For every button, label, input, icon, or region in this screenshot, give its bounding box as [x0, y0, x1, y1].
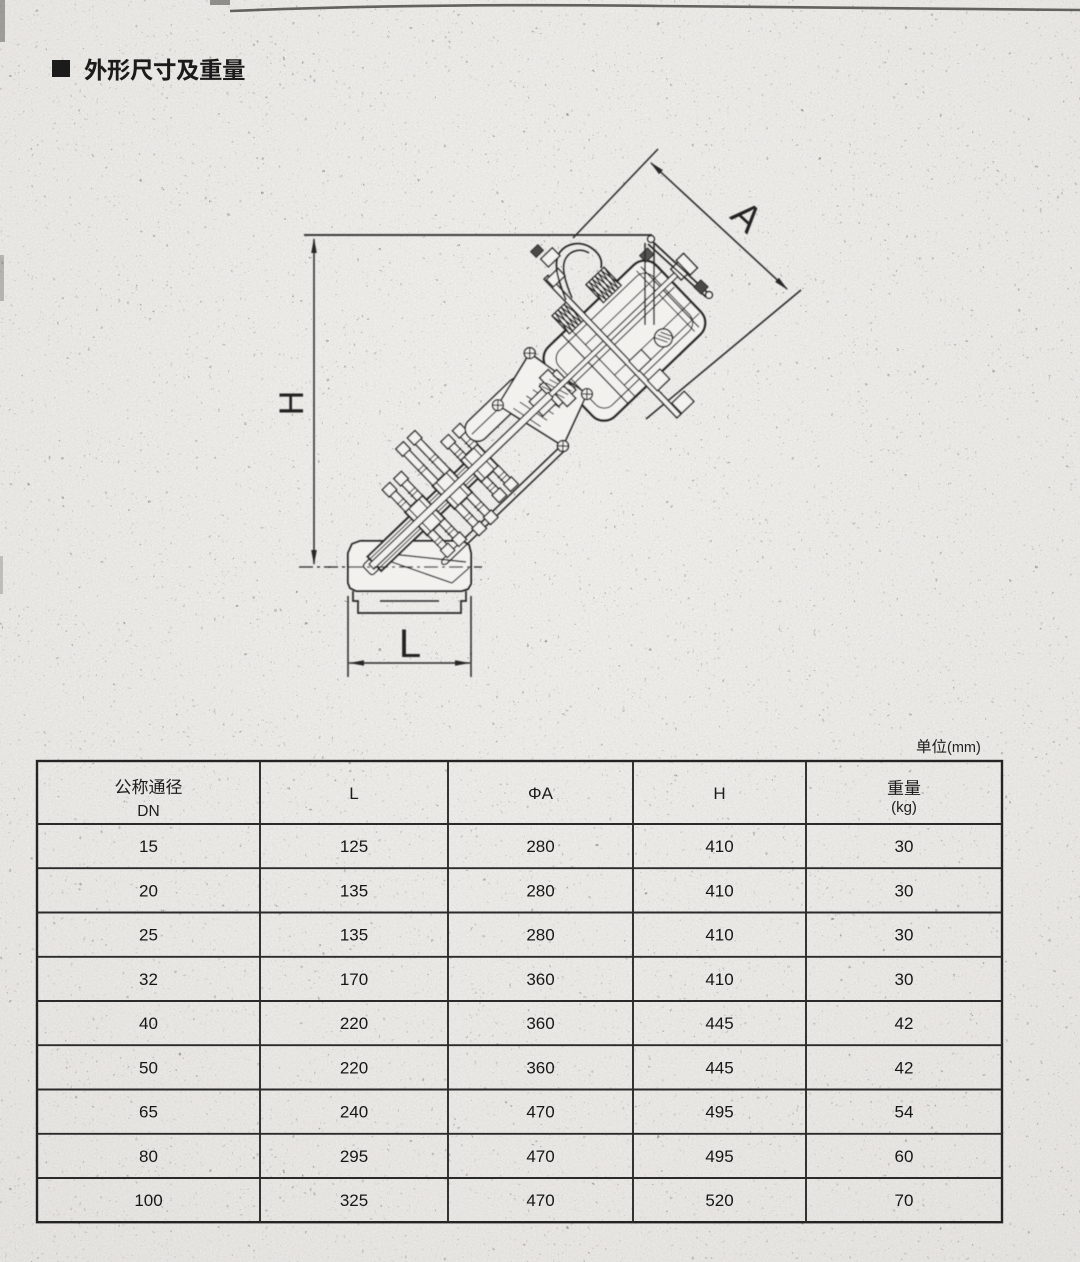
svg-text:470: 470 [526, 1103, 554, 1122]
svg-text:80: 80 [139, 1147, 158, 1166]
svg-text:42: 42 [895, 1058, 914, 1077]
svg-text:H: H [713, 784, 725, 803]
svg-text:295: 295 [340, 1147, 368, 1166]
svg-text:280: 280 [526, 837, 554, 856]
svg-text:470: 470 [526, 1191, 554, 1210]
svg-text:54: 54 [895, 1103, 914, 1122]
svg-text:135: 135 [340, 926, 368, 945]
svg-text:410: 410 [705, 881, 733, 900]
svg-text:410: 410 [705, 970, 733, 989]
svg-text:220: 220 [340, 1058, 368, 1077]
svg-text:325: 325 [340, 1191, 368, 1210]
svg-text:360: 360 [526, 1058, 554, 1077]
svg-text:L: L [349, 784, 358, 803]
svg-text:410: 410 [705, 926, 733, 945]
svg-text:495: 495 [705, 1103, 733, 1122]
svg-text:(kg): (kg) [891, 799, 917, 816]
svg-text:100: 100 [134, 1191, 162, 1210]
svg-text:30: 30 [895, 970, 914, 989]
svg-text:220: 220 [340, 1014, 368, 1033]
svg-text:DN: DN [137, 803, 159, 820]
svg-text:495: 495 [705, 1147, 733, 1166]
svg-text:240: 240 [340, 1103, 368, 1122]
svg-text:30: 30 [895, 926, 914, 945]
svg-text:ΦA: ΦA [528, 784, 554, 803]
svg-text:50: 50 [139, 1058, 158, 1077]
svg-text:445: 445 [705, 1058, 733, 1077]
svg-text:125: 125 [340, 837, 368, 856]
svg-text:L: L [399, 622, 421, 666]
svg-text:20: 20 [139, 881, 158, 900]
svg-text:H: H [273, 391, 311, 416]
svg-text:280: 280 [526, 926, 554, 945]
svg-text:65: 65 [139, 1103, 158, 1122]
svg-text:360: 360 [526, 1014, 554, 1033]
svg-text:135: 135 [340, 881, 368, 900]
svg-text:(mm): (mm) [947, 740, 981, 756]
svg-text:360: 360 [526, 970, 554, 989]
svg-text:470: 470 [526, 1147, 554, 1166]
svg-text:60: 60 [895, 1147, 914, 1166]
svg-text:32: 32 [139, 970, 158, 989]
svg-text:170: 170 [340, 970, 368, 989]
svg-text:280: 280 [526, 881, 554, 900]
svg-text:520: 520 [705, 1191, 733, 1210]
svg-text:25: 25 [139, 926, 158, 945]
svg-text:70: 70 [895, 1191, 914, 1210]
svg-text:42: 42 [895, 1014, 914, 1033]
svg-text:15: 15 [139, 837, 158, 856]
svg-text:30: 30 [895, 881, 914, 900]
svg-text:30: 30 [895, 837, 914, 856]
svg-text:410: 410 [705, 837, 733, 856]
svg-text:40: 40 [139, 1014, 158, 1033]
svg-text:445: 445 [705, 1014, 733, 1033]
